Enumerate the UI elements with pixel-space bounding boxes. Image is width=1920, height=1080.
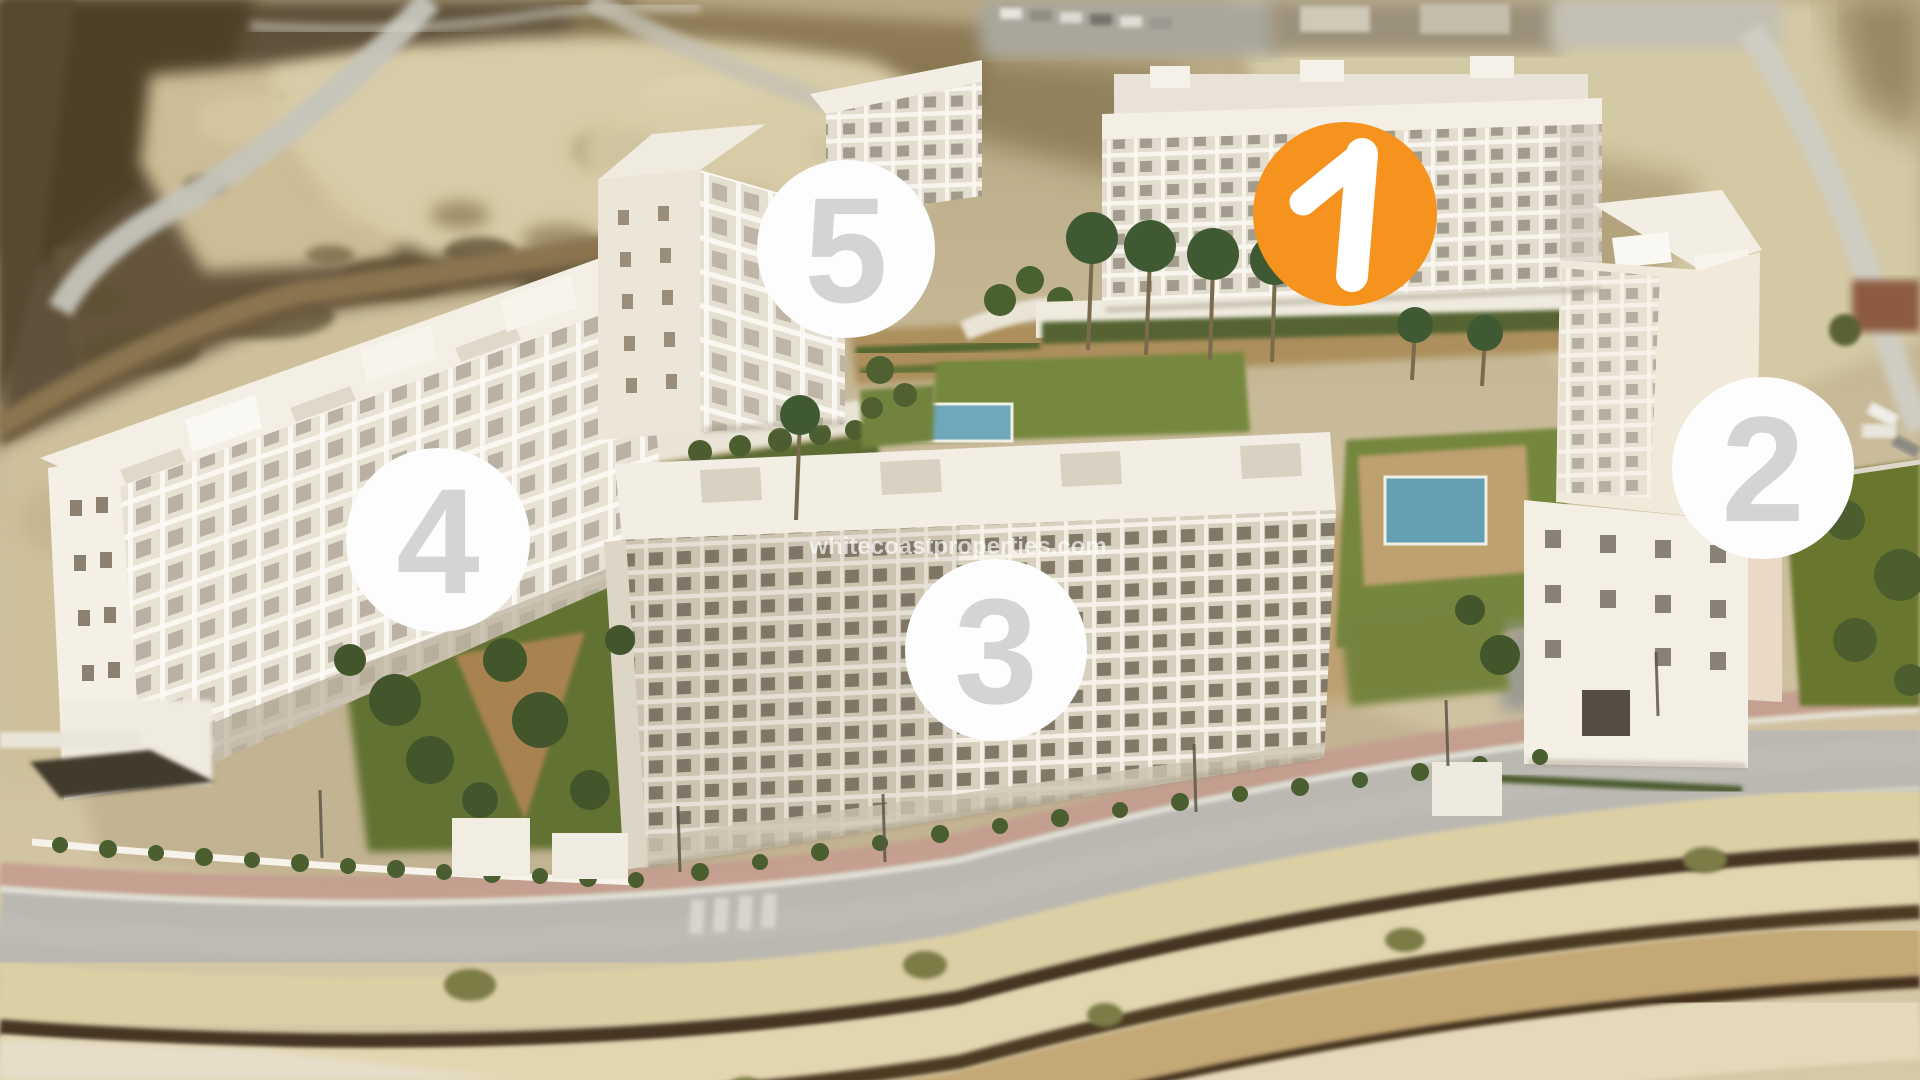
svg-text:4: 4	[396, 457, 479, 625]
svg-text:whitecoastproperties.com: whitecoastproperties.com	[808, 533, 1106, 560]
svg-text:3: 3	[954, 567, 1037, 735]
svg-text:2: 2	[1721, 385, 1804, 553]
svg-text:5: 5	[804, 166, 887, 334]
